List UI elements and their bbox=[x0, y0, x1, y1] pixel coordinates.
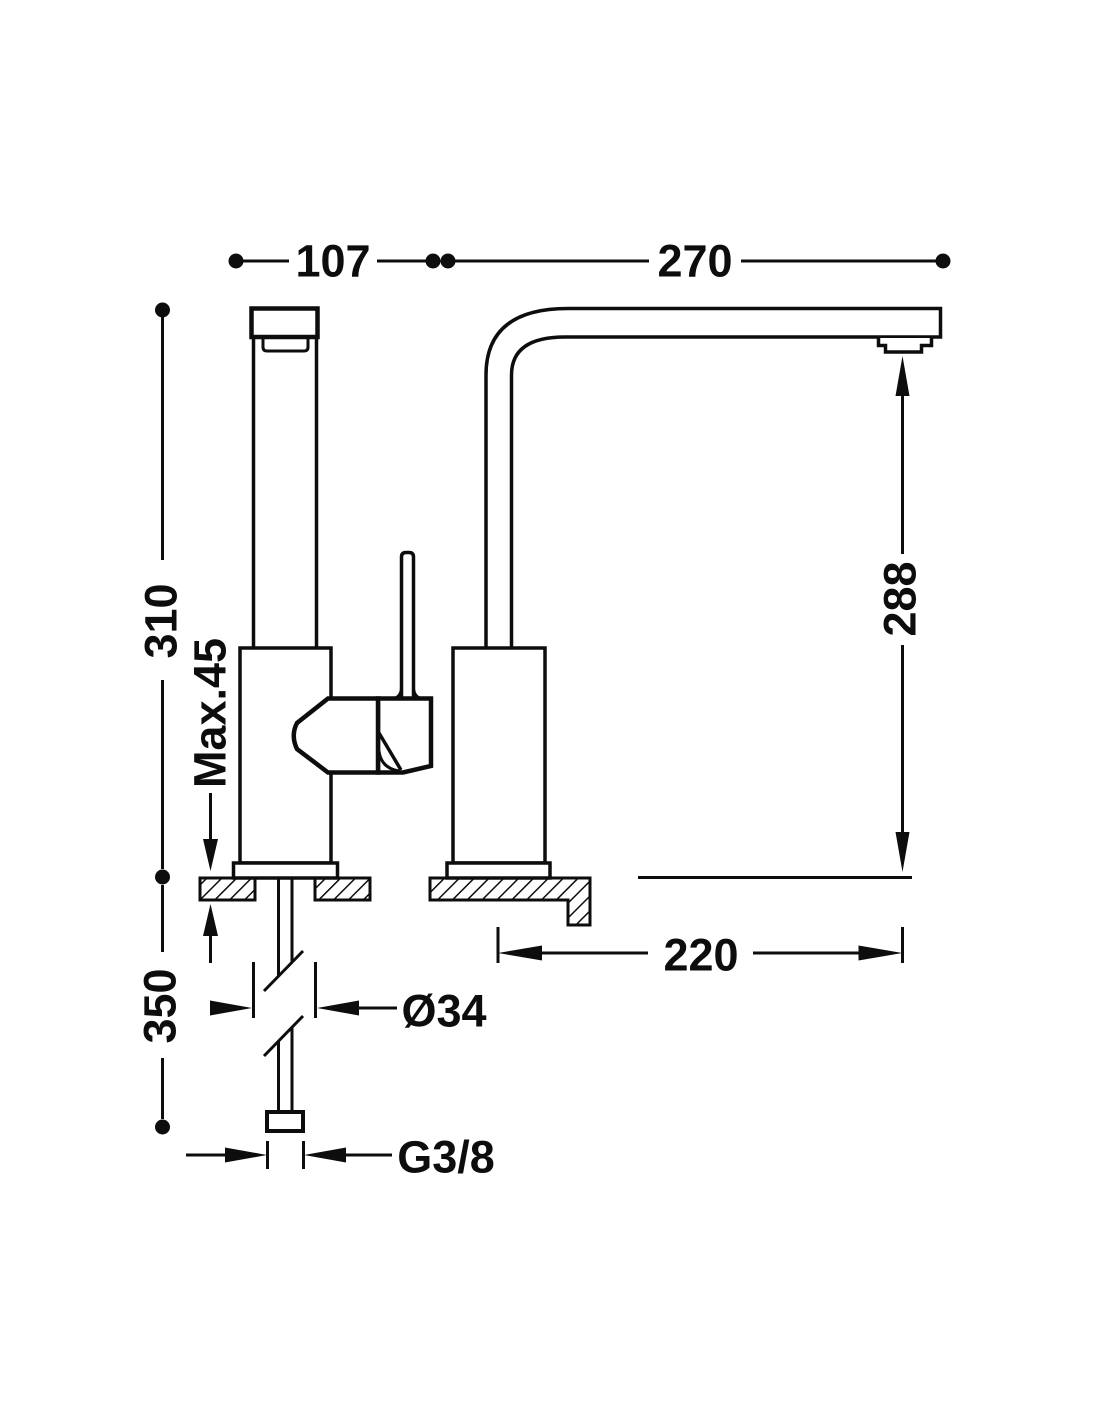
dim-label-base-diameter: Ø34 bbox=[401, 989, 486, 1034]
supply-pipe bbox=[264, 878, 303, 1131]
dim-label-length-below-counter: 350 bbox=[138, 968, 183, 1043]
counter-left-block bbox=[200, 878, 255, 900]
front-base-flange bbox=[234, 863, 338, 878]
handle-base bbox=[378, 699, 431, 773]
dimension-288 bbox=[638, 356, 912, 878]
faucet-line-drawing bbox=[0, 0, 1100, 1422]
faucet-side-view bbox=[447, 309, 941, 879]
top-cap bbox=[252, 309, 318, 338]
dim-label-outlet-height: 288 bbox=[878, 561, 923, 636]
dim-label-body-width: 107 bbox=[295, 239, 370, 284]
counter-right-block bbox=[430, 878, 590, 925]
dim-label-spout-projection: 220 bbox=[663, 933, 738, 978]
dim-label-max-counter-thickness: Max.45 bbox=[188, 638, 233, 788]
side-body bbox=[453, 648, 545, 863]
counter-cross-section bbox=[200, 878, 590, 925]
dimension-d34 bbox=[210, 962, 397, 1018]
spout-arm bbox=[486, 309, 941, 653]
side-base-flange bbox=[447, 863, 550, 878]
cap-recess bbox=[263, 338, 308, 351]
aerator-outlet bbox=[879, 338, 932, 352]
counter-middle-block bbox=[315, 878, 370, 900]
dim-label-height-above-counter: 310 bbox=[139, 583, 184, 658]
pipe-break-upper bbox=[264, 951, 303, 991]
dim-label-supply-thread: G3/8 bbox=[397, 1135, 495, 1180]
technical-drawing-canvas: 107 270 310 Max.45 350 288 220 Ø34 G3/8 bbox=[0, 0, 1100, 1422]
handle-lever-rod bbox=[402, 553, 414, 699]
dimension-g38 bbox=[186, 1141, 392, 1169]
dim-label-spout-top-length: 270 bbox=[657, 239, 732, 284]
faucet-front-view bbox=[234, 309, 432, 879]
connection-nut bbox=[267, 1112, 303, 1131]
pipe-break-lower bbox=[264, 1016, 303, 1056]
